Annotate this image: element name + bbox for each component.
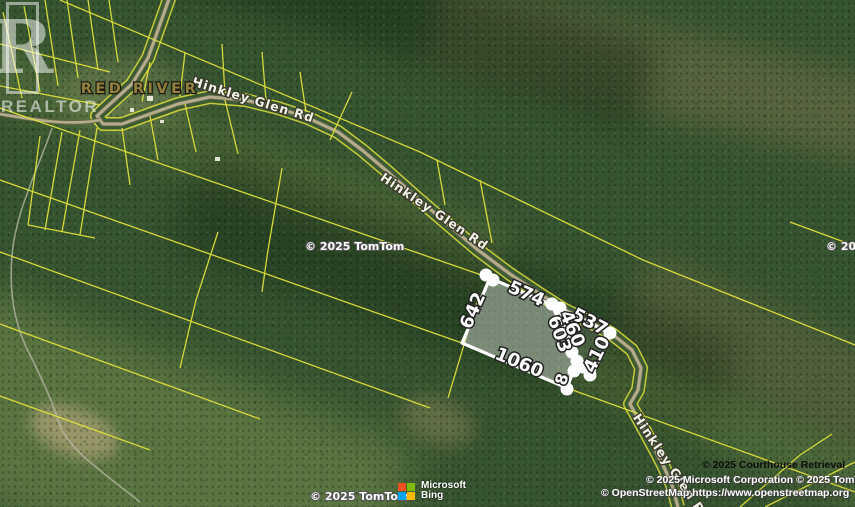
satellite-map[interactable]: 574 642 1060 537 603 460 410 8 Hinkley G… (0, 0, 855, 507)
tomtom-attribution-bottom: © 2025 TomTom (310, 490, 409, 503)
road-labels: Hinkley Glen Rd Hinkley Glen Rd Hinkley … (190, 74, 713, 507)
microsoft-logo-icon (398, 483, 415, 500)
tomtom-attribution-center: © 2025 TomTom (305, 240, 404, 253)
road-hinkley-glen (0, 0, 678, 507)
town-label-red-river: RED RIVER (81, 81, 200, 97)
trail-line (11, 128, 140, 502)
bing-logo[interactable]: Microsoft Bing (398, 481, 466, 501)
copyright-openstreetmap-link[interactable]: © OpenStreetMap https://www.openstreetma… (601, 487, 849, 499)
tomtom-attribution-right-clipped: © 2025 TomTom (826, 240, 855, 253)
copyright-microsoft: © 2025 Microsoft Corporation © 2025 TomT… (646, 474, 855, 486)
copyright-courthouse: © 2025 Courthouse Retrieval (702, 459, 845, 471)
parcel-boundary-lines (0, 0, 855, 507)
bing-wordmark: Bing (421, 491, 466, 501)
